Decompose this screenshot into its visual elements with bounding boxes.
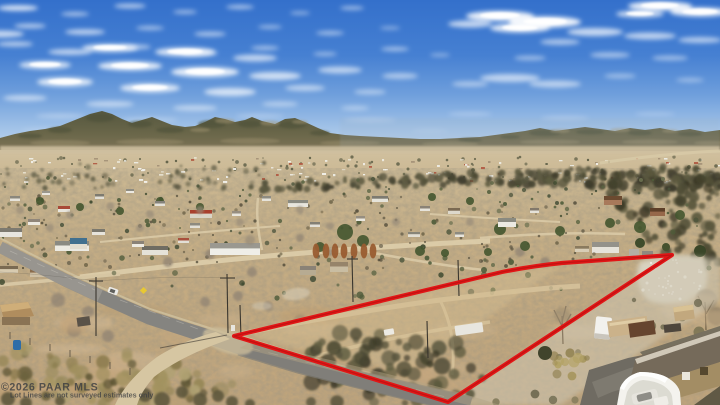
svg-text:Lot Lines are not surveyed est: Lot Lines are not surveyed estimates onl… [10, 391, 153, 400]
